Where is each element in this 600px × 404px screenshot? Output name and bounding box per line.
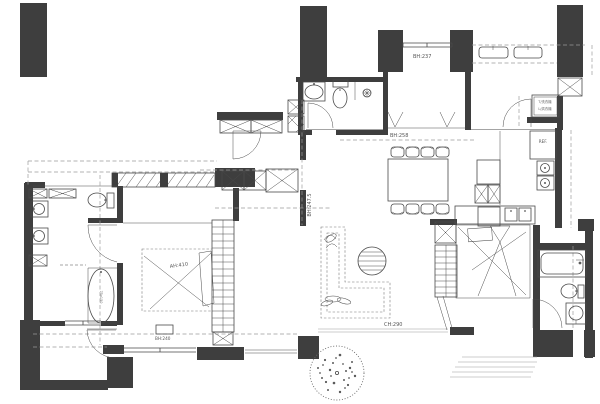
partition-lines [123,128,555,223]
dining-chairs [391,147,449,214]
kitchen-x-2 [488,185,500,203]
kitchen-sink-icon [455,206,535,224]
wardrobe-master [212,220,234,332]
toilet-3-icon [561,284,584,298]
stove-icon [537,161,554,190]
cabinet-bh240 [156,325,173,334]
living-room [321,227,390,318]
dryer-label: L/烘衣機 [538,106,552,111]
kitchen-x-1 [475,185,488,203]
bathroom-top [303,80,455,127]
washer-label: T/洗衣機 [537,99,552,104]
bed-master [142,249,214,311]
bedroom-2 [437,225,530,330]
kitchen-cabinet-2 [478,207,500,226]
coffee-table [358,247,386,275]
shower-drain-icon [355,82,371,100]
label-bh258: BH:258 [390,133,408,139]
slide-door-mark-2 [440,112,455,127]
fridge-label: REF. [539,139,548,144]
deck-lines [450,357,537,377]
ceiling-vent-2 [514,46,542,58]
sink-3-icon [566,303,586,324]
bathtub-size-label: 75x150 [99,291,103,304]
door-closet [233,131,261,159]
pipe-shaft-x [558,78,582,96]
bedroom2-x [435,222,456,243]
hatched-wall [112,173,215,187]
closet-x-5 [266,169,298,192]
label-bh237: BH:237 [413,54,431,60]
floor-plan-drawing: T/洗衣機 L/烘衣機 REF. [0,0,600,404]
angled-door [437,296,452,330]
door-bath-master [88,225,117,262]
door-arcs [87,99,562,358]
slide-door-mark-1 [388,112,403,127]
bath-x-2 [49,189,76,198]
ceiling-vent-1 [479,46,508,58]
windows [65,43,452,353]
master-bedroom [142,249,214,334]
wardrobe-bedroom2 [435,245,457,297]
bathtub-master-icon: 75x150 [88,268,117,323]
dining-area [388,147,449,214]
label-ah410: AH:410 [169,261,188,270]
floor-plan-page: T/洗衣機 L/烘衣機 REF. [0,0,600,404]
dining-table [388,159,448,201]
bed-2 [456,225,530,298]
bathroom-3 [538,250,586,324]
kitchen-cabinet [477,160,500,184]
laundry-stack: T/洗衣機 L/烘衣機 [532,95,559,117]
toilet-master-icon [88,193,114,208]
sink-icon [303,82,325,101]
fridge: REF. [530,131,556,159]
toilet-icon [333,80,348,108]
door-kitchen [503,99,531,127]
door-bath-top [308,103,333,128]
vanity-sink-2-icon [31,228,48,244]
vanity-sink-1-icon [31,201,48,217]
label-bh240: BH:240 [155,336,171,341]
label-ch290: CH:290 [384,322,402,328]
bathtub-3-icon [538,250,586,277]
bathroom-master: 75x150 [31,186,117,323]
label-bh2475: BH:247.5 [307,193,313,216]
